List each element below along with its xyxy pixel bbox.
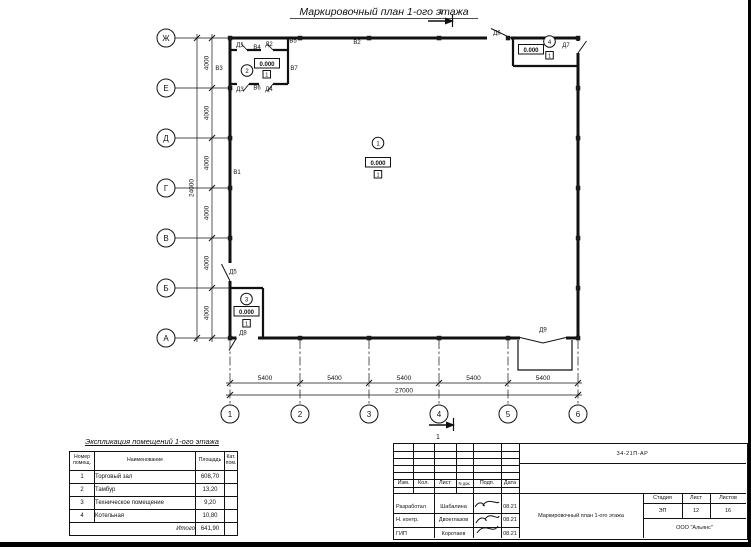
col-sign: Подп. (473, 479, 501, 487)
porch-outline (518, 340, 572, 370)
dim-5400: 5400 (397, 375, 412, 382)
stage-col-header: Стадия (643, 493, 682, 503)
dim-5400: 5400 (258, 375, 273, 382)
person-date: 08.21 (501, 500, 519, 513)
drawing-title: Маркировочный план 1-ого этажа (519, 493, 643, 538)
drawing-sheet: Маркировочный план 1-ого этажа 1 Ж Е Д Г… (0, 0, 751, 547)
mark-d5: Д5 (229, 270, 237, 276)
col-axes: 1 2 3 4 5 6 (221, 405, 587, 423)
sheet-edge-bottom (0, 542, 751, 547)
axis-number: 2 (298, 410, 303, 419)
mark-v4: В4 (253, 45, 261, 51)
door-leaves (222, 29, 587, 351)
sheets-value: 16 (710, 503, 746, 518)
axis-letter: А (163, 334, 169, 343)
mark-d7: Д7 (562, 43, 570, 49)
cell-area: 13,20 (196, 484, 225, 497)
section-number: 1 (439, 9, 443, 16)
header-room-name: Наименование (95, 452, 196, 471)
dim-4000: 4000 (204, 155, 211, 170)
cell-category (225, 484, 238, 497)
axis-number: 3 (367, 410, 372, 419)
header-room-number: Номер помещ. (70, 452, 95, 471)
table-header-row: Номер помещ. Наименование Площадь Кат. п… (70, 452, 238, 471)
dim-4000: 4000 (204, 205, 211, 220)
table-row: 4 Котельная 10,80 (70, 510, 238, 523)
mark-v1: В1 (233, 170, 241, 176)
person-date: 08.21 (501, 513, 519, 527)
cell-area: 608,70 (196, 471, 225, 484)
mark-d1: Д1 (236, 43, 244, 49)
elevation-mark: 0.000 (239, 310, 255, 316)
total-value: 641,90 (196, 523, 225, 536)
dim-4000: 4000 (204, 255, 211, 270)
table-row: 3 Техническое помещение 9,20 (70, 497, 238, 510)
mark-d8: Д8 (239, 331, 247, 337)
explication-table: Номер помещ. Наименование Площадь Кат. п… (69, 451, 238, 536)
mark-v7: В7 (290, 66, 298, 72)
building-walls (229, 37, 580, 340)
signature-scribbles (473, 493, 501, 538)
table-row: 2 Тамбур 13,20 (70, 484, 238, 497)
sheet-col-header: Лист (682, 493, 710, 503)
cell-room-number: 1 (70, 471, 95, 484)
company-name: ООО "Альянс" (643, 518, 746, 538)
floor-type-mark: 1 (376, 173, 379, 179)
title-block: Изм. Кол. Лист N док. Подп. Дата Разрабо… (393, 443, 748, 540)
dim-4000: 4000 (204, 305, 211, 320)
axis-number: 1 (228, 410, 233, 419)
dim-4000: 4000 (204, 105, 211, 120)
person-date: 08.21 (501, 527, 519, 540)
col-kol: Кол. (413, 479, 434, 487)
mark-v3: В3 (215, 66, 223, 72)
axis-letter: Ж (162, 34, 170, 43)
mark-d4: Д4 (265, 87, 273, 93)
cell-room-name: Тамбур (95, 484, 196, 497)
total-label: Итого (70, 523, 196, 536)
axis-number: 5 (506, 410, 511, 419)
dim-24000: 24000 (189, 179, 196, 197)
mark-v2: В2 (353, 40, 361, 46)
header-category: Кат. пом. (225, 452, 238, 471)
col-ndoc: N док. (456, 479, 473, 487)
cell-room-number: 2 (70, 484, 95, 497)
page-title: Маркировочный план 1-ого этажа (299, 6, 468, 18)
axis-letter: Г (164, 184, 169, 193)
cell-room-name: Торговый зал (95, 471, 196, 484)
axis-letter: Д (163, 134, 169, 143)
section-number: 1 (436, 434, 440, 440)
partitions (230, 38, 578, 338)
person-name: Коротаев (434, 527, 473, 540)
person-name: Двоеглазов (434, 513, 473, 527)
mark-v5: В5 (289, 39, 297, 45)
elevation-mark: 0.000 (370, 161, 386, 167)
dim-5400: 5400 (536, 375, 551, 382)
floor-type-mark: 1 (548, 54, 551, 60)
floor-plan: Маркировочный план 1-ого этажа 1 Ж Е Д Г… (0, 0, 751, 440)
sheet-value: 12 (682, 503, 710, 518)
axis-letter: Б (163, 284, 168, 293)
cell-category (225, 471, 238, 484)
person-role: Разработал (394, 500, 436, 513)
axis-letter: Е (163, 84, 168, 93)
cell-area: 9,20 (196, 497, 225, 510)
sheets-col-header: Листов (710, 493, 746, 503)
dim-4000: 4000 (204, 55, 211, 70)
col-list: Лист (434, 479, 456, 487)
mark-v6: В6 (253, 86, 261, 92)
floor-type-mark: 1 (245, 322, 248, 328)
explication-block: Экспликация помещений 1-ого этажа Номер … (69, 437, 235, 536)
header-area: Площадь (196, 452, 225, 471)
wall-column-nodes (228, 36, 581, 341)
floor-type-mark: 1 (265, 73, 268, 79)
cell-room-name: Котельная (95, 510, 196, 523)
table-total-row: Итого 641,90 (70, 523, 238, 536)
cell-room-number: 4 (70, 510, 95, 523)
cell-category (225, 523, 238, 536)
mark-d3: Д3 (236, 87, 244, 93)
person-role: Н. контр. (394, 513, 436, 527)
mark-d6: Д6 (493, 31, 501, 37)
col-izm: Изм. (394, 479, 413, 487)
room-markers: 2 0.000 1 4 0.000 1 1 0.000 1 3 0.000 1 (234, 36, 555, 328)
cell-room-name: Техническое помещение (95, 497, 196, 510)
cell-category (225, 510, 238, 523)
dim-5400: 5400 (466, 375, 481, 382)
doc-number: 34-21П-АР (519, 446, 746, 462)
person-role: ГИП (394, 527, 436, 540)
cell-area: 10,80 (196, 510, 225, 523)
stage-value: ЭП (643, 503, 682, 518)
elevation-mark: 0.000 (259, 62, 275, 68)
dim-27000: 27000 (395, 388, 413, 395)
table-row: 1 Торговый зал 608,70 (70, 471, 238, 484)
elevation-mark: 0.000 (523, 48, 539, 54)
mark-d2: Д2 (265, 42, 273, 48)
axis-letter: В (163, 234, 168, 243)
cell-category (225, 497, 238, 510)
axis-number: 6 (576, 410, 581, 419)
explication-title: Экспликация помещений 1-ого этажа (69, 437, 235, 446)
axis-number: 4 (437, 410, 442, 419)
dim-5400: 5400 (327, 375, 342, 382)
cell-room-number: 3 (70, 497, 95, 510)
person-name: Шабалина (434, 500, 473, 513)
mark-d9: Д9 (539, 328, 547, 334)
col-date: Дата (501, 479, 519, 487)
